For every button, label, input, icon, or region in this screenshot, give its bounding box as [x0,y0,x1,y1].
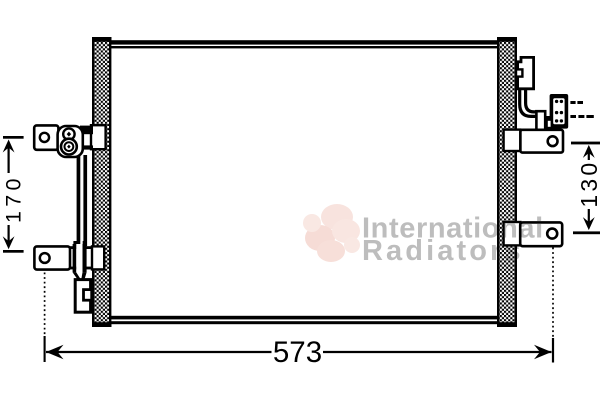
svg-text:130: 130 [576,160,600,208]
svg-text:170: 170 [1,174,25,223]
svg-text:573: 573 [273,336,322,369]
svg-text:Radiators: Radiators [362,235,524,267]
